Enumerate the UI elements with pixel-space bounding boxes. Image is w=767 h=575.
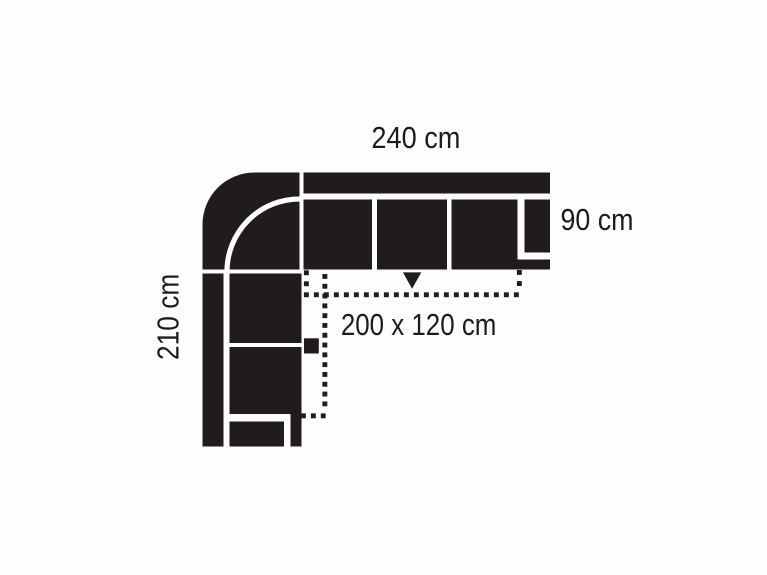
svg-text:210 cm: 210 cm <box>151 274 186 360</box>
svg-text:240 cm: 240 cm <box>371 120 460 155</box>
svg-text:200 x 120 cm: 200 x 120 cm <box>341 307 497 342</box>
svg-text:90 cm: 90 cm <box>561 202 634 237</box>
